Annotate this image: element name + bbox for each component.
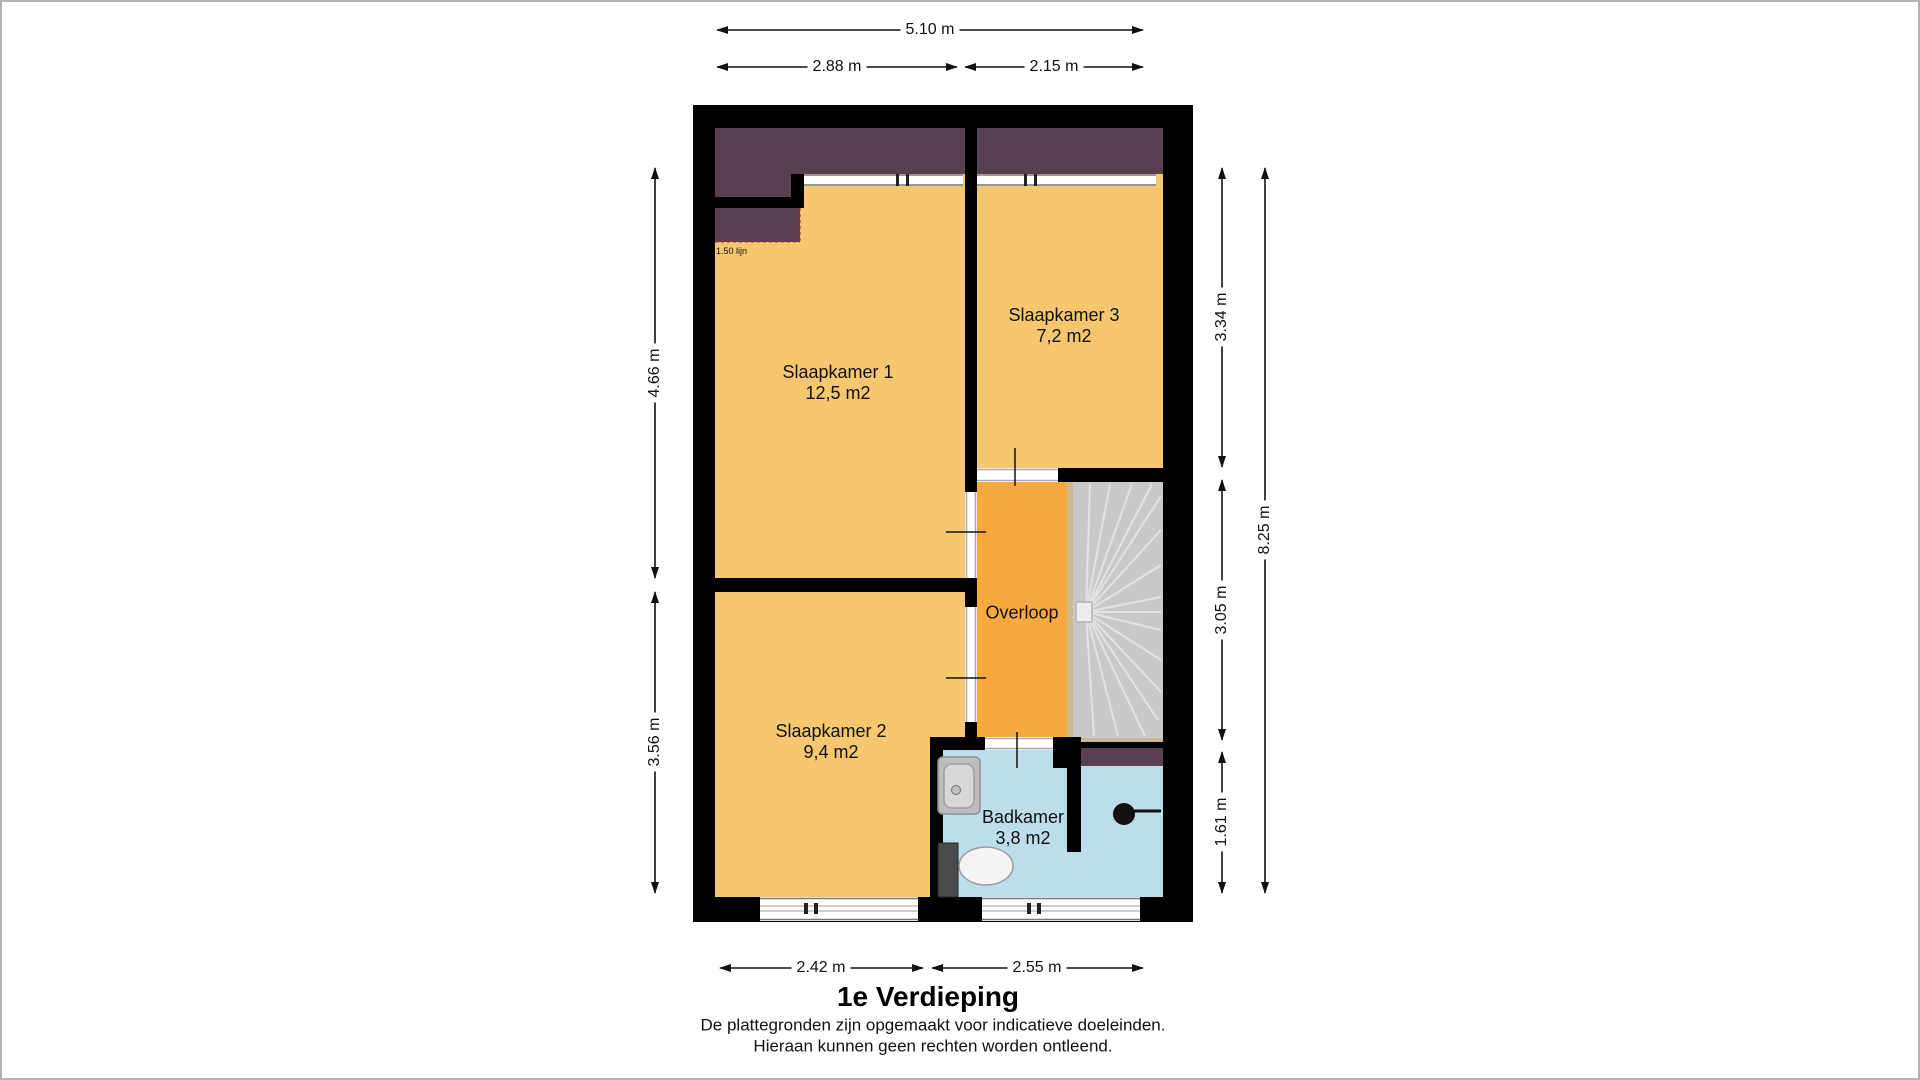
room-label-slaapkamer-2: Slaapkamer 2 9,4 m2 [775,721,886,763]
room-name: Slaapkamer 3 [1008,305,1119,326]
room-name: Overloop [985,603,1058,624]
disclaimer-line-2: Hieraan kunnen geen rechten worden ontle… [753,1036,1112,1057]
sink-icon [938,757,980,814]
dimension-label-right-middle: 3.05 m [1213,581,1231,640]
room-label-slaapkamer-3: Slaapkamer 3 7,2 m2 [1008,305,1119,347]
attic-line-label: 1.50 lijn [716,246,747,256]
dimension-label-bottom-left: 2.42 m [792,959,851,977]
window-icon [977,174,1156,186]
dimension-label-right-total: 8.25 m [1256,501,1274,560]
disclaimer-line-1: De plattegronden zijn opgemaakt voor ind… [701,1015,1166,1036]
room-name: Slaapkamer 2 [775,721,886,742]
room-area: 12,5 m2 [782,383,893,404]
dimension-label-left-upper: 4.66 m [646,344,664,403]
window-icon [804,174,963,186]
dimension-label-top-total: 5.10 m [901,21,960,39]
room-name: Slaapkamer 1 [782,362,893,383]
dimension-label-bottom-right: 2.55 m [1008,959,1067,977]
dimension-label-right-lower: 1.61 m [1213,793,1231,852]
dimension-label-top-left: 2.88 m [808,58,867,76]
room-area: 9,4 m2 [775,742,886,763]
stairs-icon [1067,482,1163,743]
room-name: Badkamer [982,807,1064,828]
dimension-label-right-upper: 3.34 m [1213,288,1231,347]
room-area: 3,8 m2 [982,828,1064,849]
room-label-badkamer: Badkamer 3,8 m2 [982,807,1064,849]
window-icon [982,897,1140,921]
page-title: 1e Verdieping [837,981,1019,1013]
dimension-label-left-lower: 3.56 m [646,713,664,772]
dimension-label-top-right: 2.15 m [1025,58,1084,76]
stair-newel-icon [1076,602,1092,622]
room-area: 7,2 m2 [1008,326,1119,347]
room-label-overloop: Overloop [985,603,1058,624]
room-label-slaapkamer-1: Slaapkamer 1 12,5 m2 [782,362,893,404]
floorplan-drawing [0,0,1920,1080]
window-icon [760,897,918,921]
floorplan-canvas: Slaapkamer 1 12,5 m2 Slaapkamer 3 7,2 m2… [0,0,1920,1080]
